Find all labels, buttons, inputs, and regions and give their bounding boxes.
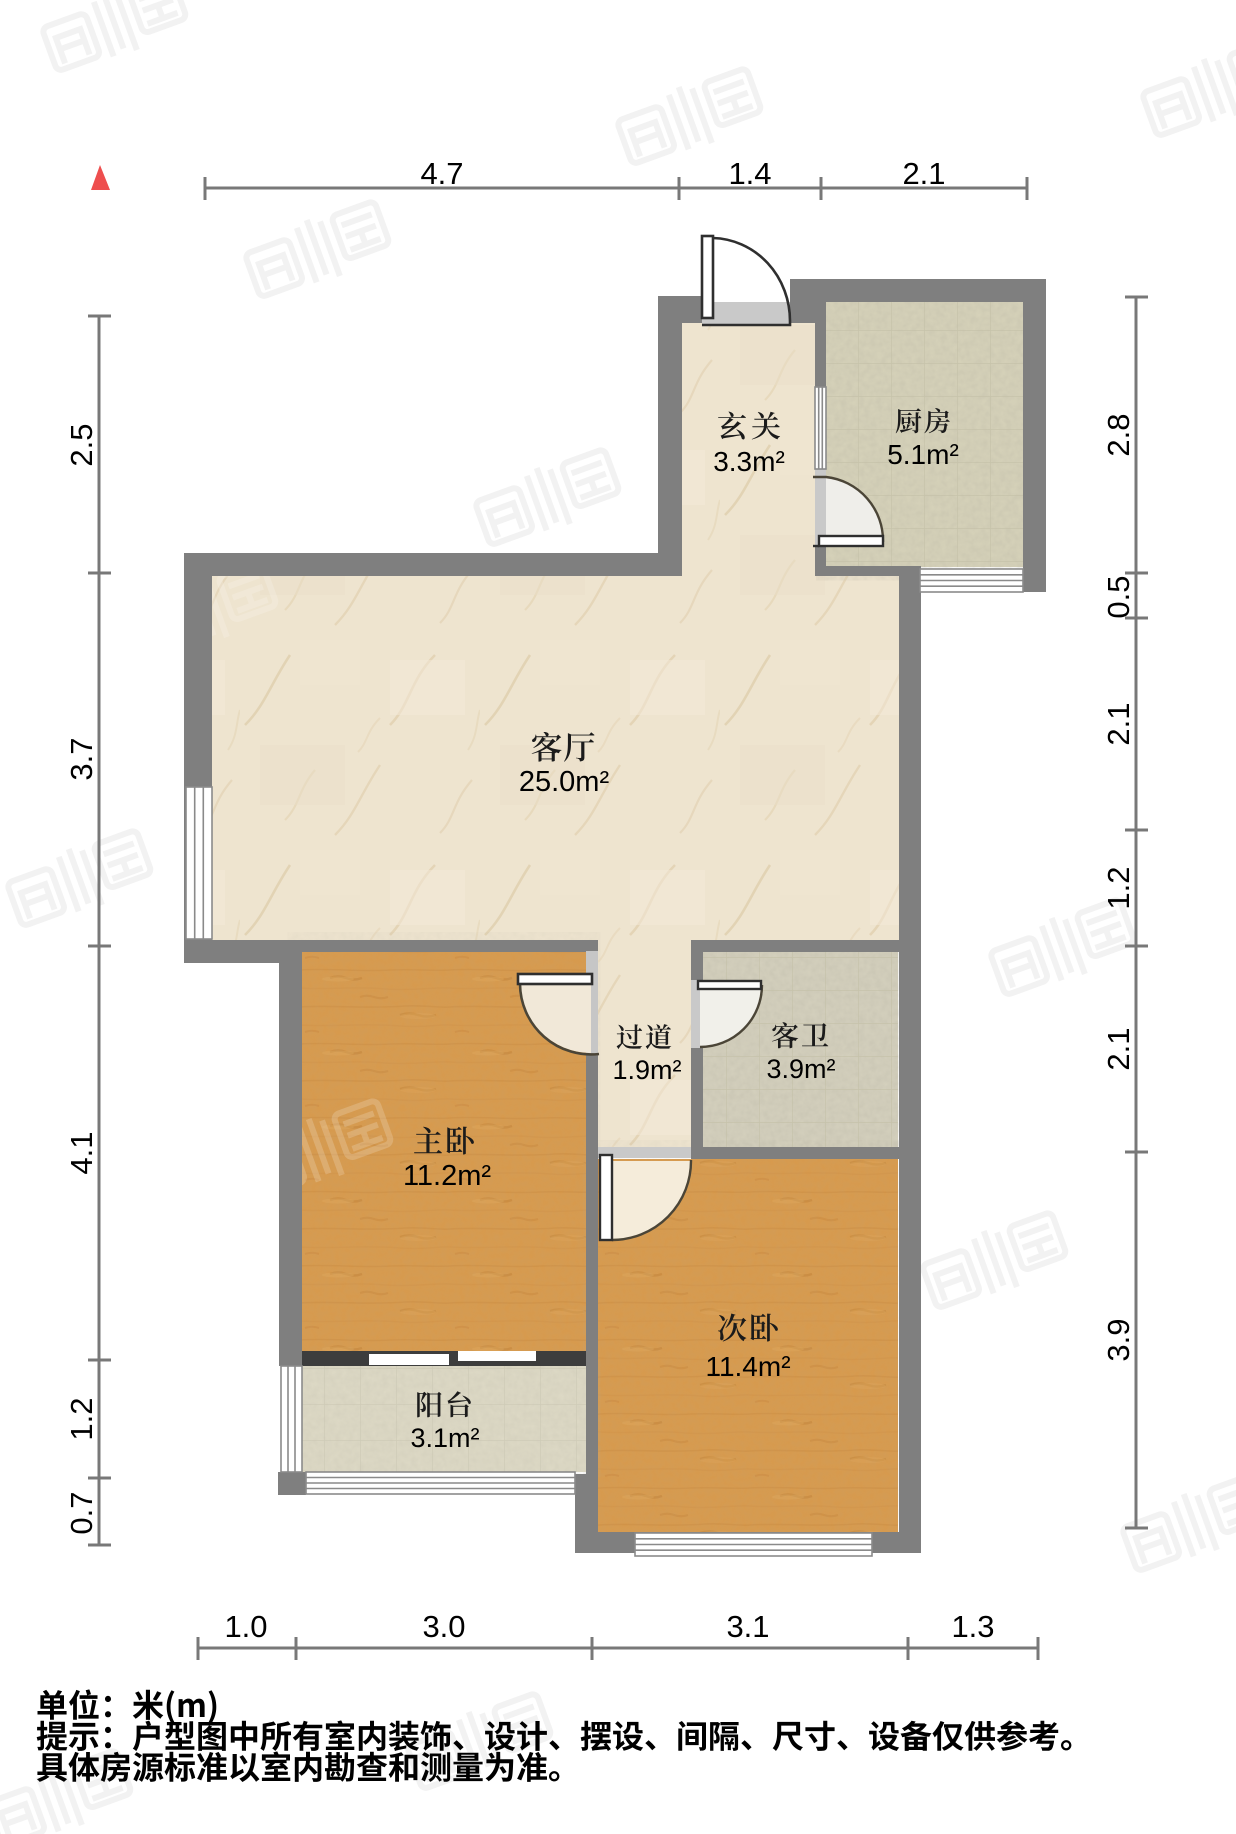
svg-text:25.0m²: 25.0m² [519, 766, 610, 798]
svg-text:1.2: 1.2 [1101, 866, 1136, 909]
svg-text:1.0: 1.0 [224, 1609, 267, 1644]
svg-text:11.2m²: 11.2m² [403, 1160, 491, 1192]
svg-text:0.5: 0.5 [1101, 575, 1136, 618]
svg-text:3.1m²: 3.1m² [410, 1423, 479, 1453]
svg-text:2.1: 2.1 [902, 156, 945, 191]
svg-text:5.1m²: 5.1m² [887, 439, 959, 470]
svg-text:2.5: 2.5 [64, 423, 99, 466]
svg-text:0.7: 0.7 [64, 1491, 99, 1534]
svg-text:2.1: 2.1 [1101, 702, 1136, 745]
svg-text:4.1: 4.1 [64, 1131, 99, 1174]
svg-text:3.1: 3.1 [726, 1609, 769, 1644]
svg-text:1.4: 1.4 [728, 156, 771, 191]
svg-text:3.3m²: 3.3m² [713, 446, 785, 477]
svg-text:3.7: 3.7 [64, 737, 99, 780]
svg-text:3.0: 3.0 [422, 1609, 465, 1644]
svg-text:4.7: 4.7 [420, 156, 463, 191]
svg-text:2.1: 2.1 [1101, 1027, 1136, 1070]
svg-text:2.8: 2.8 [1101, 413, 1136, 456]
svg-text:1.3: 1.3 [951, 1609, 994, 1644]
svg-text:1.9m²: 1.9m² [612, 1055, 681, 1085]
svg-text:1.2: 1.2 [64, 1397, 99, 1440]
svg-text:3.9: 3.9 [1101, 1318, 1136, 1361]
svg-text:3.9m²: 3.9m² [766, 1054, 835, 1084]
svg-text:11.4m²: 11.4m² [705, 1351, 790, 1382]
